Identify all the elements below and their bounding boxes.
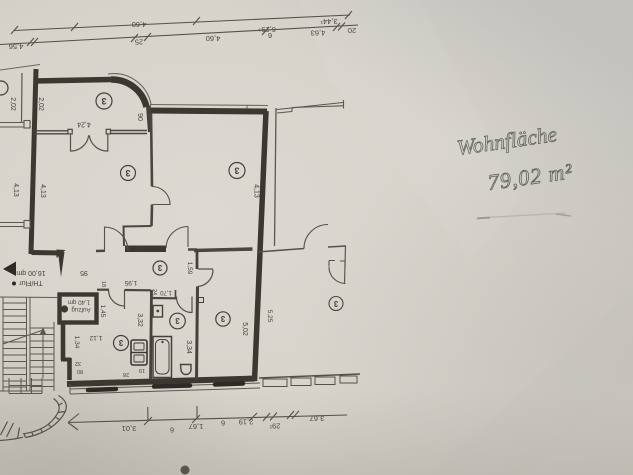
svg-text:3,32: 3,32 — [136, 313, 143, 327]
svg-text:3,01: 3,01 — [122, 424, 137, 433]
svg-text:3: 3 — [157, 263, 162, 272]
svg-text:4,63: 4,63 — [311, 29, 326, 38]
svg-text:18: 18 — [100, 281, 106, 287]
svg-text:3: 3 — [118, 338, 123, 347]
svg-text:1,12: 1,12 — [89, 334, 102, 341]
svg-text:4,13: 4,13 — [39, 184, 46, 198]
svg-text:3: 3 — [220, 314, 225, 323]
svg-text:32: 32 — [75, 360, 81, 366]
svg-text:4,60: 4,60 — [206, 34, 221, 43]
svg-text:4,56: 4,56 — [9, 42, 24, 51]
svg-text:TH/Flur: TH/Flur — [19, 279, 43, 286]
svg-text:20: 20 — [348, 26, 356, 35]
svg-text:2,02: 2,02 — [37, 97, 44, 111]
svg-text:1,95: 1,95 — [124, 279, 137, 286]
svg-text:80: 80 — [77, 368, 83, 374]
svg-text:4,13: 4,13 — [253, 184, 260, 198]
svg-text:1,34: 1,34 — [73, 336, 80, 349]
svg-text:3: 3 — [101, 96, 106, 106]
svg-text:3: 3 — [333, 299, 338, 308]
svg-text:3,44¹: 3,44¹ — [320, 17, 338, 26]
svg-text:1,40 qm: 1,40 qm — [68, 299, 90, 306]
svg-text:28: 28 — [123, 371, 129, 377]
svg-text:1,70: 1,70 — [160, 289, 172, 295]
svg-text:29¹: 29¹ — [269, 422, 280, 431]
svg-text:6: 6 — [268, 31, 272, 40]
svg-text:2,19: 2,19 — [239, 418, 254, 427]
svg-text:6: 6 — [170, 426, 174, 435]
svg-text:3: 3 — [234, 166, 239, 176]
svg-text:19: 19 — [139, 367, 145, 373]
svg-text:3,34: 3,34 — [185, 340, 192, 354]
svg-text:3,67: 3,67 — [310, 414, 325, 423]
svg-text:1,45: 1,45 — [99, 305, 106, 318]
svg-text:24: 24 — [151, 289, 157, 295]
svg-text:25: 25 — [135, 38, 143, 47]
svg-text:5,02: 5,02 — [241, 322, 248, 336]
svg-text:Aufzug: Aufzug — [71, 306, 91, 313]
svg-text:4,24: 4,24 — [77, 121, 91, 128]
svg-text:3: 3 — [125, 168, 130, 178]
svg-text:3: 3 — [175, 316, 180, 325]
svg-text:1,67: 1,67 — [189, 422, 204, 431]
svg-text:6: 6 — [221, 419, 225, 428]
svg-text:4,60: 4,60 — [132, 20, 147, 29]
svg-text:16,00 qm: 16,00 qm — [16, 269, 45, 276]
svg-text:95: 95 — [80, 269, 88, 276]
svg-text:90: 90 — [136, 113, 143, 121]
svg-text:4,13: 4,13 — [12, 183, 19, 197]
svg-text:2,02: 2,02 — [9, 97, 16, 111]
svg-text:1,59: 1,59 — [186, 262, 193, 275]
svg-text:5,25: 5,25 — [266, 310, 273, 323]
